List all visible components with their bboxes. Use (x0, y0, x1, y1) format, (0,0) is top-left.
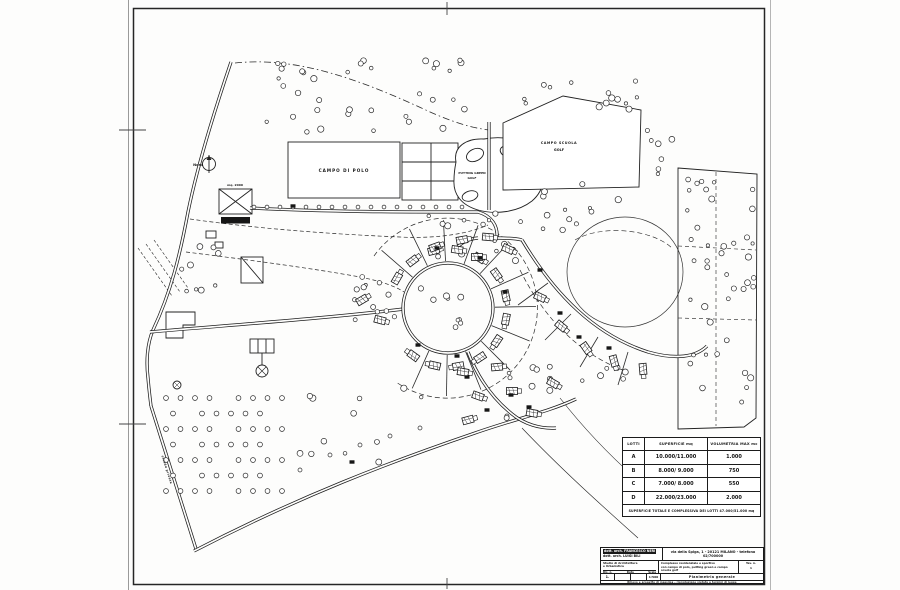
tree-icon (193, 396, 198, 401)
tree-icon (598, 373, 604, 379)
tree-icon (719, 251, 724, 256)
tree-icon (164, 489, 169, 494)
tree-icon (343, 451, 347, 455)
tree-icon (523, 97, 527, 101)
tree-icon (512, 257, 518, 263)
tree-icon (207, 458, 212, 463)
tree-icon (358, 443, 362, 447)
tree-icon (445, 223, 451, 229)
tree-icon (211, 245, 216, 250)
tree-icon (392, 315, 396, 319)
tree-icon (689, 298, 692, 301)
house (501, 313, 511, 329)
lot-markers-layer (291, 204, 612, 463)
tree-icon (214, 284, 217, 287)
tree-icon (741, 286, 746, 291)
tree-icon (689, 237, 693, 241)
tree-icon (386, 292, 391, 297)
lot-volumetria: 550 (708, 478, 761, 492)
tree-icon (649, 139, 653, 143)
tree-icon (732, 241, 736, 245)
tree-icon (265, 489, 270, 494)
tree-icon (178, 489, 183, 494)
tree-icon (560, 227, 565, 232)
lot-marker-chip (485, 408, 490, 411)
tree-icon (243, 411, 248, 416)
house (502, 244, 519, 257)
tree-icon (198, 287, 204, 293)
tree-icon (508, 376, 512, 380)
tree-icon (458, 294, 464, 300)
tree-icon (243, 442, 248, 447)
tree-icon (193, 489, 198, 494)
tree-icon (371, 305, 376, 310)
tree-icon (278, 205, 282, 209)
tree-icon (265, 458, 270, 463)
tree-icon (656, 172, 659, 175)
tree-icon (258, 473, 263, 478)
tree-icon (304, 205, 308, 209)
tree-icon (433, 61, 439, 67)
tree-icon (354, 287, 359, 292)
tree-icon (197, 244, 203, 250)
lot-superficie: 7.000/ 8.000 (645, 478, 708, 492)
lot-marker-chip (350, 460, 355, 463)
tree-icon (742, 370, 747, 375)
tree-icon (180, 267, 184, 271)
tree-icon (715, 352, 720, 357)
tree-icon (215, 251, 221, 257)
road-casing (522, 240, 707, 357)
small-building (206, 231, 216, 238)
tree-icon (702, 303, 708, 309)
tree-icon (529, 383, 535, 389)
tree-icon (309, 451, 314, 456)
tree-icon (750, 187, 754, 191)
tree-icon (194, 288, 197, 291)
tree-icon (243, 473, 248, 478)
tree-icon (360, 275, 365, 280)
tree-icon (281, 84, 286, 89)
lot-marker-chip (465, 375, 470, 378)
tree-icon (567, 217, 572, 222)
tree-icon (236, 427, 241, 432)
studio-cell: Studio di Architettura e Urbanistica Dis… (601, 561, 659, 573)
tree-icon (200, 473, 205, 478)
site-plan-svg: Nord CAMPO DI POLO PUTTING GREEN GOLF CA… (0, 0, 900, 590)
tree-icon (519, 220, 523, 224)
tree-icon (686, 209, 689, 212)
tree-icon (721, 243, 727, 249)
tree-icon (686, 177, 691, 182)
lot-marker-chip (509, 393, 514, 396)
tree-icon (421, 205, 425, 209)
tree-icon (357, 396, 362, 401)
house (456, 235, 472, 244)
tree-icon (265, 396, 270, 401)
lot-marker-chip (607, 346, 612, 349)
tree-icon (596, 104, 602, 110)
lot-marker-chip (527, 405, 532, 408)
tree-icon (655, 141, 661, 147)
road-fill (147, 62, 231, 406)
tree-icon (200, 442, 205, 447)
tree-icon (563, 208, 566, 211)
tree-icon (548, 85, 552, 89)
house (462, 414, 478, 425)
tree-icon (178, 458, 183, 463)
tree-icon (458, 321, 462, 325)
tree-icon (406, 119, 411, 124)
road-fill (194, 399, 576, 551)
tree-icon (277, 77, 280, 80)
tree-icon (688, 361, 693, 366)
tree-icon (251, 396, 256, 401)
tree-icon (252, 205, 256, 209)
lots-row-d: D 22.000/23.000 2.000 (623, 491, 761, 505)
tree-icon (164, 427, 169, 432)
title-block: dott. arch. FRANCESCO NERI dott. arch. L… (600, 547, 764, 584)
tree-icon (751, 242, 754, 245)
tav-value: 1 (739, 566, 763, 571)
tree-icon (251, 458, 256, 463)
tree-icon (430, 97, 435, 102)
ring-road-fill (403, 263, 493, 353)
tree-icon (687, 188, 691, 192)
lots-header-row: LOTTI SUPERFICIE mq VOLUMETRIA MAX mc (623, 438, 761, 451)
tree-icon (418, 426, 422, 430)
tree-icon (712, 181, 716, 185)
house (451, 245, 467, 254)
tree-icon (280, 427, 285, 432)
tree-icon (751, 284, 756, 289)
tree-icon (298, 468, 302, 472)
tree-icon (695, 181, 699, 185)
tree-icon (750, 206, 756, 212)
tree-icon (603, 100, 609, 106)
tree-icon (207, 489, 212, 494)
tree-icon (236, 458, 241, 463)
club-house-label: CLUB HOUSE (223, 219, 247, 223)
lot-marker-chip (478, 256, 483, 259)
studio-line-2: e Urbanistica (603, 565, 656, 568)
tree-icon (251, 489, 256, 494)
lot-volumetria: 1.000 (708, 451, 761, 465)
tree-icon (408, 205, 412, 209)
house (639, 363, 647, 379)
tree-icon (321, 438, 327, 444)
house (472, 391, 488, 403)
tree-icon (453, 325, 458, 330)
tree-icon (280, 458, 285, 463)
lot-line (446, 355, 447, 396)
l-building (166, 312, 195, 338)
tree-icon (279, 66, 284, 71)
tree-icon (622, 369, 628, 375)
tree-icon (356, 205, 360, 209)
tree-icon (692, 259, 696, 263)
tree-icon (745, 386, 749, 390)
stables-grid (402, 143, 458, 200)
house (406, 252, 422, 267)
tree-icon (704, 187, 709, 192)
road-casing (194, 399, 576, 551)
tree-icon (376, 459, 382, 465)
lot-id: D (623, 491, 645, 505)
tree-icon (358, 61, 363, 66)
tree-icon (280, 489, 285, 494)
tree-icon (460, 205, 464, 209)
tree-icon (372, 129, 376, 133)
tree-icon (214, 442, 219, 447)
tree-icon (700, 179, 704, 183)
tree-icon (214, 473, 219, 478)
tree-icon (374, 439, 379, 444)
tree-icon (346, 70, 350, 74)
tree-icon (171, 411, 176, 416)
tree-icon (709, 196, 715, 202)
house (425, 360, 441, 370)
lot-superficie: 10.000/11.000 (645, 451, 708, 465)
lots-header-volumetria: VOLUMETRIA MAX mc (708, 438, 761, 451)
club-house-chip: CLUB HOUSE (221, 217, 250, 224)
tree-icon (745, 254, 751, 260)
tree-icon (369, 205, 373, 209)
tree-icon (452, 98, 456, 102)
tree-icon (265, 120, 268, 123)
tree-icon (300, 69, 305, 74)
tree-icon (185, 289, 189, 293)
tree-icon (705, 265, 710, 270)
tower-building (250, 339, 274, 377)
tree-icon (382, 205, 386, 209)
lot-line (495, 306, 536, 307)
tree-icon (276, 61, 280, 65)
tree-icon (423, 58, 429, 64)
lots-row-b: B 8.000/ 9.000 750 (623, 464, 761, 478)
lot-marker-chip (291, 204, 296, 207)
architect-name-2: dott. arch. LUIGI BILI (603, 554, 660, 559)
golf-school-label-2: GOLF (554, 148, 565, 152)
tree-icon (706, 244, 709, 247)
house (534, 292, 551, 305)
tree-icon (401, 385, 407, 391)
tree-icon (624, 102, 627, 105)
lot-superficie: 8.000/ 9.000 (645, 464, 708, 478)
club-house-area-label: mq. 2000 (227, 183, 243, 187)
tree-icon (504, 415, 509, 420)
house (491, 363, 507, 371)
tree-icon (419, 395, 423, 399)
tree-icon (315, 107, 320, 112)
tree-icon (229, 473, 234, 478)
tree-icon (580, 182, 585, 187)
tree-icon (290, 114, 295, 119)
tree-icon (351, 410, 357, 416)
tree-icon (436, 254, 441, 259)
club-house-building (219, 189, 252, 214)
tree-icon (236, 489, 241, 494)
tree-icon (343, 205, 347, 209)
tree-icon (317, 205, 321, 209)
tree-icon (487, 219, 490, 222)
tree-icon (740, 400, 744, 404)
tree-icon (745, 280, 751, 286)
tree-icon (724, 338, 729, 343)
tree-icon (725, 273, 729, 277)
lot-marker-chip (455, 354, 460, 357)
tree-icon (447, 205, 451, 209)
tree-icon (187, 262, 193, 268)
tree-icon (481, 222, 486, 227)
tree-icon (633, 79, 637, 83)
house (482, 233, 498, 241)
tree-icon (229, 442, 234, 447)
tree-icon (542, 189, 548, 195)
tree-icon (305, 130, 310, 135)
tree-icon (404, 114, 408, 118)
tree-icon (744, 235, 749, 240)
tree-icon (193, 427, 198, 432)
tree-icon (615, 196, 621, 202)
lot-marker-chip (503, 290, 508, 293)
road-casing (147, 62, 231, 406)
tree-icon (229, 411, 234, 416)
tree-icon (656, 167, 661, 172)
tree-icon (547, 387, 553, 393)
tree-icon (265, 427, 270, 432)
lot-marker-chip (435, 246, 440, 249)
tree-icon (431, 297, 437, 303)
tree-icon (547, 364, 552, 369)
tree-icon (588, 206, 591, 209)
tree-icon (493, 211, 498, 216)
tree-icon (353, 318, 357, 322)
lot-marker-chip (577, 335, 582, 338)
tree-icon (178, 396, 183, 401)
tree-icon (330, 205, 334, 209)
lot-volumetria: 750 (708, 464, 761, 478)
tree-icon (369, 66, 373, 70)
tree-icon (707, 319, 713, 325)
tree-icon (258, 411, 263, 416)
golf-school-label: CAMPO SCUOLA (541, 141, 577, 145)
tree-icon (297, 450, 303, 456)
putting-green-label-2: GOLF (468, 176, 477, 180)
tree-icon (700, 385, 706, 391)
tree-icon (377, 280, 382, 285)
title-block-footer: Rilievo e progetto di massima - riproduz… (601, 580, 763, 583)
tree-icon (726, 297, 730, 301)
tree-icon (534, 367, 540, 373)
house (374, 315, 390, 326)
tree-icon (621, 377, 626, 382)
tree-icon (282, 62, 286, 66)
house (404, 347, 420, 361)
tree-icon (751, 276, 756, 281)
tree-icon (418, 286, 423, 291)
project-cell: Complesso residenziale e sportivo con ca… (659, 561, 739, 573)
tree-icon (731, 286, 736, 291)
lot-volumetria: 2.000 (708, 491, 761, 505)
lots-header-superficie: SUPERFICIE mq (645, 438, 708, 451)
house (489, 334, 503, 350)
tree-icon (605, 366, 609, 370)
lots-header-lotti: LOTTI (623, 438, 645, 451)
tree-icon (361, 285, 366, 290)
tree-icon (307, 393, 312, 398)
house (490, 268, 504, 284)
tree-icon (178, 427, 183, 432)
tree-icon (695, 225, 700, 230)
architects-cell: dott. arch. FRANCESCO NERI dott. arch. L… (601, 548, 663, 560)
tree-icon (443, 293, 449, 299)
lot-marker-chip (558, 311, 563, 314)
tree-icon (440, 221, 445, 226)
tree-icon (580, 379, 584, 383)
lots-table: LOTTI SUPERFICIE mq VOLUMETRIA MAX mc A … (622, 437, 761, 517)
lot-id: A (623, 451, 645, 465)
tree-icon (207, 427, 212, 432)
drawing-sheet: Nord CAMPO DI POLO PUTTING GREEN GOLF CA… (0, 0, 900, 590)
house (391, 269, 405, 285)
tree-icon (606, 91, 611, 96)
lots-footnote-row: SUPERFICIE TOTALE E COMPLESSIVA DEI LOTT… (623, 505, 761, 517)
tree-icon (236, 396, 241, 401)
polo-field-label: CAMPO DI POLO (319, 168, 370, 173)
lots-row-a: A 10.000/11.000 1.000 (623, 451, 761, 465)
tree-icon (265, 205, 269, 209)
tree-icon (317, 97, 322, 102)
tree-icon (311, 75, 317, 81)
tree-icon (495, 249, 499, 253)
tree-icon (164, 396, 169, 401)
tree-icon (427, 214, 431, 218)
tree-icon (395, 205, 399, 209)
putting-green-label: PUTTING GREEN (458, 171, 486, 175)
lot-marker-chip (538, 268, 543, 271)
tree-icon (635, 96, 638, 99)
oval-contour (575, 231, 672, 248)
tav-cell: Tav. n. 1 (739, 561, 763, 573)
lot-id: C (623, 478, 645, 492)
house (470, 352, 486, 366)
tree-icon (669, 136, 675, 142)
tree-icon (328, 453, 332, 457)
tree-icon (347, 107, 353, 113)
tree-icon (615, 96, 621, 102)
tree-icon (318, 126, 324, 132)
tree-icon (626, 106, 632, 112)
tree-icon (258, 442, 263, 447)
tree-icon (704, 353, 707, 356)
tree-icon (295, 90, 301, 96)
tree-icon (458, 58, 462, 62)
tree-icon (369, 108, 374, 113)
tree-icon (280, 396, 285, 401)
house (355, 292, 371, 306)
tree-icon (384, 309, 389, 314)
tree-icon (375, 310, 379, 314)
tree-icon (171, 442, 176, 447)
tree-icon (200, 411, 205, 416)
tree-icon (692, 353, 696, 357)
boundary-dashed (186, 252, 404, 292)
tree-icon (251, 427, 256, 432)
house (609, 355, 620, 371)
tree-icon (507, 371, 511, 375)
tree-icon (541, 227, 545, 231)
